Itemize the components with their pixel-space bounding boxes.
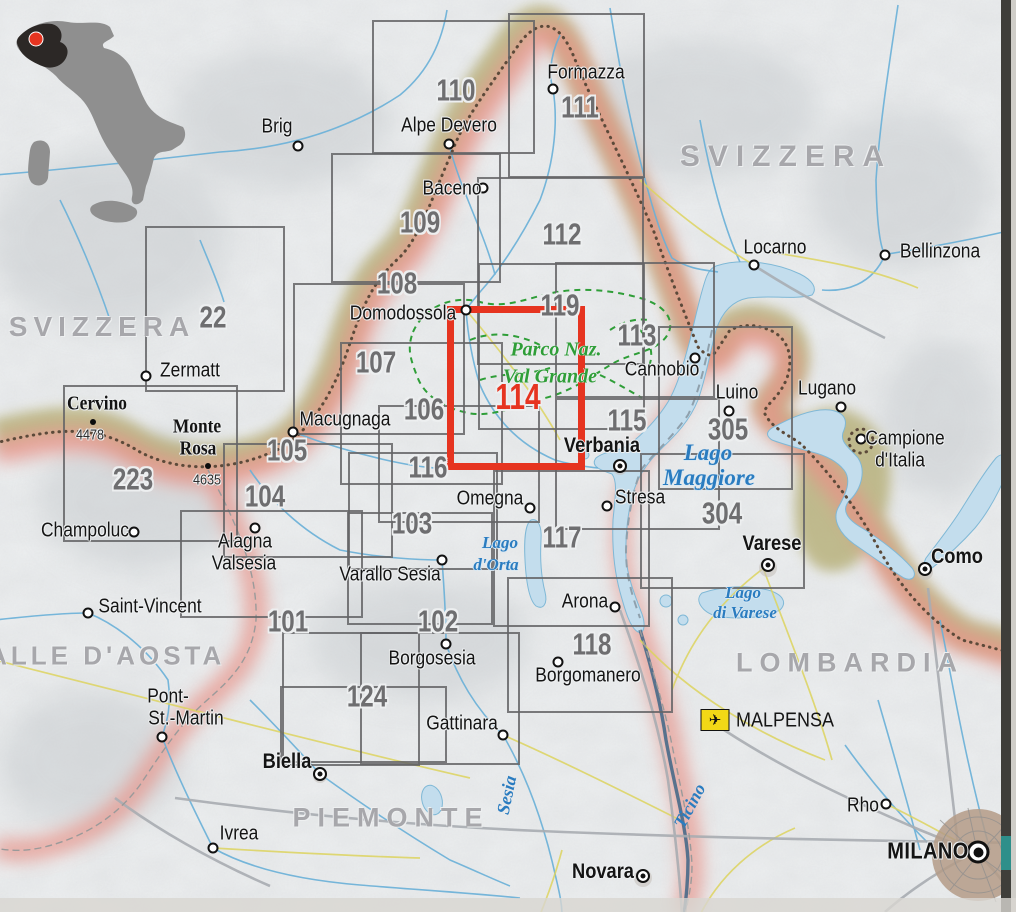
place-marker-varese (761, 558, 775, 572)
sheet-number-101: 101 (268, 603, 308, 639)
place-marker-champoluc (129, 527, 140, 538)
region-label-svizzera-1: SVIZZERA (9, 311, 195, 343)
place-label-ivrea: Ivrea (220, 823, 259, 846)
place-marker-arona (610, 602, 621, 613)
place-label-macugnaga: Macugnaga (300, 409, 391, 432)
place-marker-verbania (613, 459, 627, 473)
place-marker-formazza (548, 84, 559, 95)
airport-label-malpensa: MALPENSA (736, 710, 834, 733)
sheet-number-109: 109 (400, 204, 440, 240)
place-label-lugano: Lugano (798, 378, 856, 401)
sheet-number-22: 22 (200, 299, 227, 335)
water-label-lago-2: Lago (482, 533, 518, 553)
place-label-brig: Brig (262, 116, 293, 139)
place-marker-locarno (749, 260, 760, 271)
peak-marker-cervino (90, 419, 96, 425)
place-label-varese: Varese (743, 532, 802, 556)
place-label-biella: Biella (263, 750, 312, 774)
place-label-borgomanero: Borgomanero (535, 665, 640, 688)
sheet-number-102: 102 (418, 603, 458, 639)
sheet-number-304: 304 (702, 495, 742, 531)
peak-label-cervino: Cervino (67, 393, 127, 416)
sheet-number-223: 223 (113, 461, 153, 497)
place-label-como: Como (931, 545, 983, 569)
map-index-page: 2211011110911210810711911310610510422311… (0, 0, 1016, 912)
place-marker-macugnaga (288, 427, 299, 438)
peak-elevation-monte-rosa: 4635 (193, 472, 221, 488)
place-marker-domodossola (461, 305, 472, 316)
inset-location-dot (29, 32, 43, 46)
peak-label-monte-rosa: Monte (173, 416, 221, 439)
place-label-alpe-devero: Alpe Devero (401, 115, 497, 138)
water-label-lago-4: Lago (725, 583, 761, 603)
sheet-number-115: 115 (607, 402, 646, 438)
place-marker-novara (636, 869, 650, 883)
place-marker-gattinara (498, 730, 509, 741)
region-label-svizzera-0: SVIZZERA (680, 140, 892, 174)
place-label-omegna: Omegna (457, 488, 524, 511)
sheet-number-106: 106 (404, 391, 444, 427)
place-label-formazza: Formazza (547, 62, 624, 85)
place-label-alagna-valsesia: Valsesia (212, 553, 276, 576)
place-marker-biella (313, 767, 327, 781)
place-marker-bellinzona (880, 250, 891, 261)
sheet-number-110: 110 (436, 72, 475, 108)
place-label-zermatt: Zermatt (160, 360, 220, 383)
place-marker-brig (293, 141, 304, 152)
sheet-number-116: 116 (408, 449, 447, 485)
water-label-di-varese-5: di Varese (713, 603, 777, 623)
place-label-campione-d-italia: d'Italia (875, 450, 925, 473)
place-marker-stresa (602, 501, 613, 512)
place-label-varallo-sesia: Varallo Sesia (339, 564, 440, 587)
place-label-saint-vincent: Saint-Vincent (98, 596, 201, 619)
sheet-number-124: 124 (347, 678, 387, 714)
place-label-verbania: Verbania (564, 434, 640, 458)
place-label-alagna-valsesia: Alagna (218, 531, 272, 554)
sheet-number-118: 118 (572, 626, 611, 662)
peak-label-monte-rosa: Rosa (180, 438, 217, 461)
place-label-borgosesia: Borgosesia (388, 648, 475, 671)
place-marker-alpe-devero (444, 139, 455, 150)
place-label-gattinara: Gattinara (426, 713, 498, 736)
park-label-line-2: Val Grande (503, 366, 597, 389)
place-label-pont-st-martin: Pont- (147, 686, 189, 709)
place-marker-como (918, 562, 932, 576)
place-label-champoluc: Champoluc (41, 520, 129, 543)
malpensa-airport-icon: ✈ (701, 709, 730, 731)
sheet-number-111: 111 (561, 89, 599, 125)
water-label-maggiore-1: Maggiore (663, 465, 755, 491)
place-label-cannobio: Cannobio (625, 359, 699, 382)
region-label-valle-d-aosta-2: VALLE D'AOSTA (0, 641, 225, 672)
place-label-campione-d-italia: Campione (865, 428, 944, 451)
place-marker-milano (967, 841, 990, 864)
place-marker-omegna (525, 503, 536, 514)
place-label-rho: Rho (847, 795, 879, 818)
place-label-baceno: Baceno (422, 178, 481, 201)
sheet-number-112: 112 (542, 216, 581, 252)
place-label-locarno: Locarno (744, 237, 807, 260)
place-marker-saint-vincent (83, 608, 94, 619)
sheet-number-119: 119 (540, 287, 579, 323)
place-label-milano: MILANO (887, 837, 969, 864)
place-label-arona: Arona (562, 591, 608, 614)
place-marker-zermatt (141, 371, 152, 382)
sheet-number-108: 108 (377, 265, 417, 301)
sheet-number-107: 107 (356, 344, 396, 380)
place-label-pont-st-martin: St.-Martin (148, 708, 223, 731)
peak-elevation-cervino: 4478 (76, 427, 104, 443)
place-label-domodossola: Domodossola (350, 303, 456, 326)
place-label-bellinzona: Bellinzona (900, 241, 980, 264)
water-label-d-orta-3: d'Orta (473, 555, 518, 575)
sheet-number-103: 103 (392, 505, 432, 541)
place-label-novara: Novara (572, 860, 634, 884)
sheet-number-105: 105 (267, 432, 307, 468)
place-label-luino: Luino (716, 382, 759, 405)
sheet-number-117: 117 (542, 519, 581, 555)
sheet-number-113: 113 (617, 317, 656, 353)
sardinia (28, 140, 50, 185)
place-marker-luino (724, 406, 735, 417)
place-marker-ivrea (208, 843, 219, 854)
place-label-stresa: Stresa (615, 487, 665, 510)
place-marker-rho (881, 799, 892, 810)
park-label-line-1: Parco Naz. (510, 339, 601, 362)
water-label-lago-0: Lago (684, 440, 733, 466)
region-label-lombardia-3: LOMBARDIA (736, 648, 964, 679)
peak-marker-monte-rosa (205, 463, 211, 469)
sheet-number-104: 104 (245, 478, 285, 514)
region-label-piemonte-4: PIEMONTE (292, 803, 489, 834)
place-marker-pont-st-martin (157, 732, 168, 743)
place-marker-lugano (836, 402, 847, 413)
